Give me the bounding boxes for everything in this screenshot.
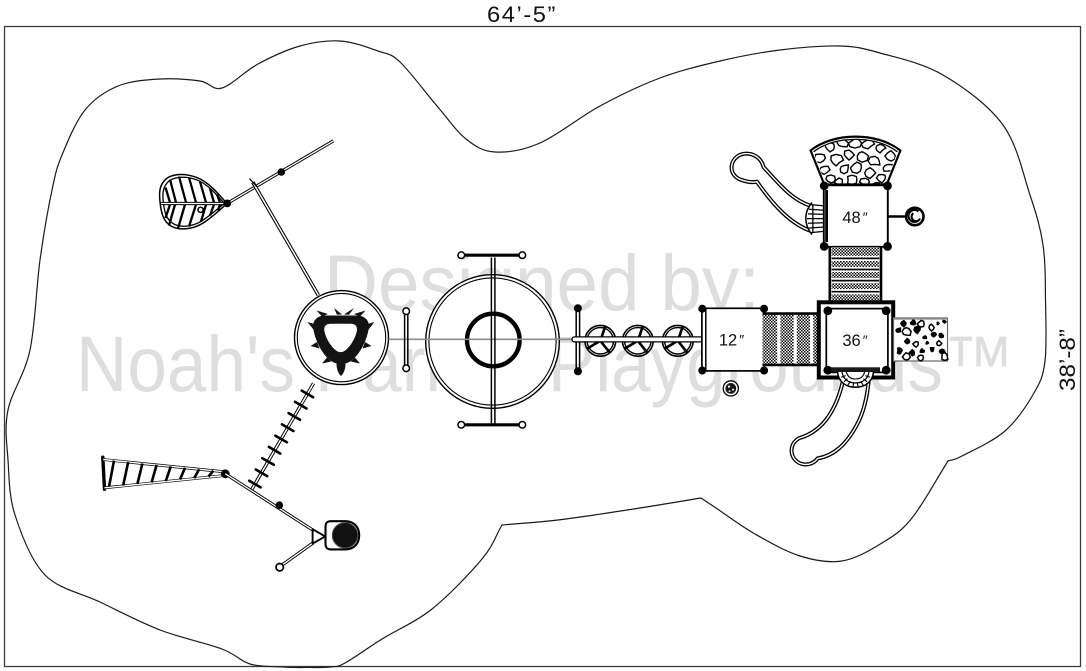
svg-text:38’-8”: 38’-8”: [1055, 329, 1080, 391]
svg-text:64’-5”: 64’-5”: [487, 2, 557, 27]
svg-text:48″: 48″: [842, 209, 867, 227]
svg-text:12″: 12″: [719, 332, 744, 350]
svg-text:36″: 36″: [842, 332, 867, 350]
